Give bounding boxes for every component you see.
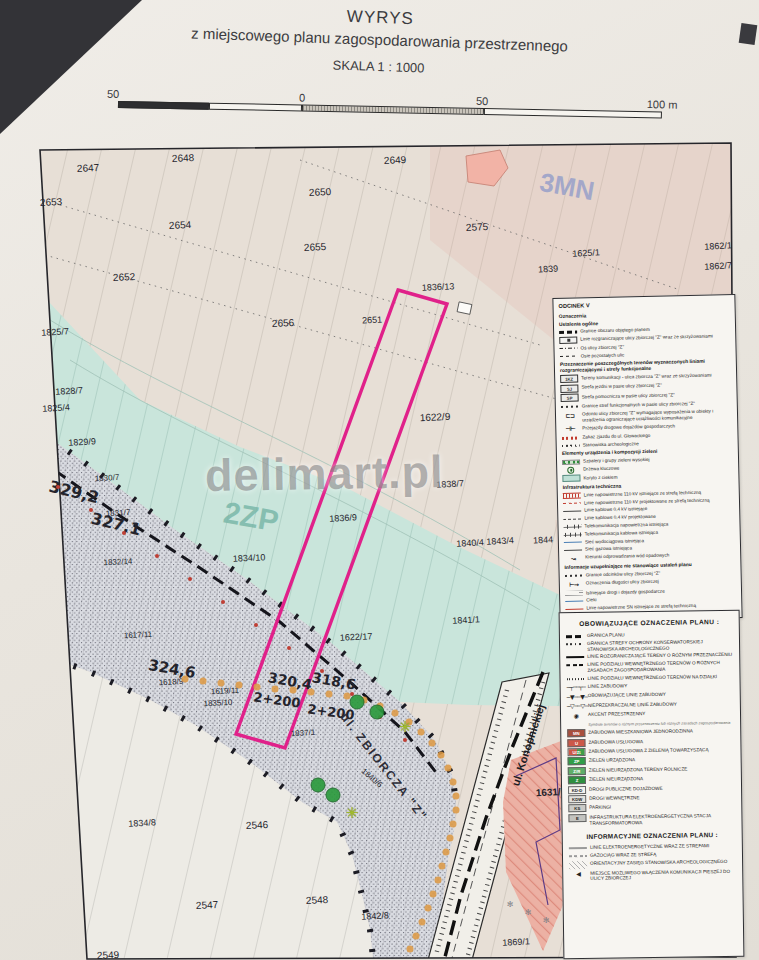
zone-swatch: U/Zt bbox=[567, 748, 585, 756]
tree-row-dot bbox=[447, 835, 454, 842]
legend-odcinek-title: ODCINEK V bbox=[558, 299, 729, 309]
legend-item-label: GRANICA STREFY OCHRONY KONSERWATORSKIEJ … bbox=[587, 638, 733, 653]
tree-row-dot bbox=[218, 680, 225, 687]
tree-row-dot bbox=[236, 682, 243, 689]
axis-point-dot bbox=[89, 508, 93, 512]
parcel-label: 1828/7 bbox=[55, 385, 83, 396]
parcel-label: 1825/4 bbox=[42, 402, 70, 413]
zone-swatch: MN bbox=[567, 729, 585, 737]
parcel-label: 2655 bbox=[304, 241, 327, 253]
legend-swatch-tagbox: SJ bbox=[560, 384, 578, 392]
zone-swatch: U bbox=[567, 739, 585, 747]
legend-info-items: LINIE ELEKTROENERGETYCZNE WRAZ ZE STREFA… bbox=[569, 842, 737, 882]
cross-mark-icon: ✻ bbox=[525, 909, 532, 917]
green-star-icon: ✳ bbox=[399, 719, 412, 734]
zone-label: INFRASTRUKTURA ELEKTROENERGETYCZNA STACJ… bbox=[589, 812, 735, 827]
parcel-label: 1834/8 bbox=[128, 817, 156, 828]
axis-point-dot bbox=[254, 623, 258, 627]
legend-odcinek-box: ODCINEK V Oznaczenia Ustalenia ogólneGra… bbox=[552, 294, 742, 622]
legend-swatch-fdash bbox=[561, 406, 579, 408]
legend-swatch-red bbox=[565, 608, 583, 610]
legend-item: ◀MIEJSCE MOŻLIWEGO WŁĄCZENIA KOMUNIKACJI… bbox=[569, 867, 736, 882]
tree-row-dot bbox=[254, 684, 261, 691]
legend-swatch-symbol: ⊏⊐ bbox=[561, 411, 579, 419]
parcel-label: 2575 bbox=[466, 221, 489, 233]
axis-point-dot bbox=[122, 531, 126, 535]
legend-swatch-kdots bbox=[562, 445, 580, 448]
parcel-label: 1834/10 bbox=[232, 552, 265, 564]
axis-point-dot bbox=[403, 738, 407, 742]
legend-swatch-tree bbox=[567, 466, 574, 473]
tree-row-dot bbox=[290, 687, 297, 694]
tree-row-dot bbox=[326, 691, 333, 698]
chainage-label: 327,1 bbox=[89, 509, 143, 540]
chainage-label: 329,2 bbox=[47, 477, 101, 508]
parcel-label: 2650 bbox=[309, 186, 332, 198]
tree-row-dot bbox=[182, 676, 189, 683]
parcel-label: 2647 bbox=[77, 162, 100, 174]
parcel-label: 1862/1 bbox=[704, 240, 732, 251]
parcel-label: 2653 bbox=[40, 196, 63, 208]
legend-plan-box: OBOWIĄZUJĄCE OZNACZENIA PLANU : GRANICA … bbox=[559, 610, 745, 959]
zone-label: PARKINGI bbox=[589, 804, 611, 811]
chainage-label: 324,6 bbox=[147, 656, 197, 682]
parcel-label: 2654 bbox=[169, 219, 192, 231]
zone-area-label: 3MN bbox=[537, 167, 596, 207]
parcel-label: 2548 bbox=[306, 894, 329, 906]
legend-swatch-mdash bbox=[566, 664, 584, 666]
legend-item-label: GAZOCIĄG WRAZ ZE STREFĄ bbox=[590, 851, 656, 859]
legend-swatch-tealbox bbox=[562, 475, 580, 482]
legend-item-label: Przejazdy drogowe dojazdów gospodarczych bbox=[582, 422, 675, 431]
legend-item-label: GRANICA PLANU bbox=[587, 631, 625, 638]
legend-swatch-kdots bbox=[566, 643, 584, 645]
legend-item-label: Koryto z ciekiem bbox=[583, 473, 617, 481]
legend-item-label: Drzewa kluczowe bbox=[583, 465, 619, 473]
legend-item-label: Osie pozostałych ulic bbox=[581, 351, 625, 359]
tree-row-dot bbox=[430, 891, 437, 898]
zone-swatch: E bbox=[568, 814, 586, 822]
legend-item-label: Sieć wodociągowa istniejąca bbox=[585, 537, 644, 545]
parcel-label: 1622/17 bbox=[339, 631, 372, 643]
zone-swatch: KD-D bbox=[568, 785, 586, 793]
tree-row-dot bbox=[450, 821, 457, 828]
parcel-label: 1829/9 bbox=[68, 436, 96, 447]
parcel-label: 2648 bbox=[172, 152, 195, 164]
legend-swatch-rhatch bbox=[563, 492, 581, 498]
zone-label: ZIELEŃ URZĄDZONA bbox=[589, 757, 636, 764]
legend-swatch-blue bbox=[564, 542, 582, 544]
chainage-label: 318,6 bbox=[311, 669, 357, 692]
tree-row-dot bbox=[435, 877, 442, 884]
legend-swatch-thin bbox=[563, 510, 581, 511]
legend-item-label: Linie kablowe 0,4 kV istniejące bbox=[584, 505, 647, 513]
legend-swatch-dash bbox=[560, 355, 578, 357]
parcel-label: 1840/4 bbox=[456, 537, 484, 548]
legend-swatch-fdots bbox=[567, 678, 585, 680]
parcel-label: 1619/11 bbox=[211, 686, 240, 696]
tree-row-dot bbox=[439, 863, 446, 870]
legend-item-label: Oznaczenia długości ulicy zbiorczej bbox=[586, 578, 659, 586]
zone-label: ZABUDOWA USŁUGOWA Z ZIELENIĄ TOWARZYSZĄC… bbox=[588, 746, 708, 754]
axis-point-dot bbox=[221, 600, 225, 604]
key-tree-icon bbox=[350, 695, 365, 710]
legend-swatch-symbol: ⊢→ bbox=[565, 580, 583, 588]
tree-row-dot bbox=[200, 678, 207, 685]
zone-label: ZIELEŃ NIEURZĄDZONA TERENY ROLNICZE bbox=[589, 765, 688, 773]
legend-swatch-ghatch bbox=[569, 860, 587, 868]
legend-swatch-tick2 bbox=[564, 532, 582, 536]
tree-row-dot bbox=[453, 793, 460, 800]
legend-item-label: Strefa jezdni w pasie ulicy zbiorczej "Z… bbox=[581, 382, 662, 391]
zone-label: DROGI PUBLICZNE DOJAZDOWE bbox=[589, 784, 663, 792]
parcel-label: 1841/1 bbox=[452, 614, 480, 625]
axis-point-dot bbox=[56, 485, 60, 489]
watermark: delimart.pl bbox=[205, 446, 444, 502]
legend-info-header: INFORMACYJNE OZNACZENIA PLANU : bbox=[569, 831, 736, 840]
tree-row-dot bbox=[425, 905, 432, 912]
axis-point-dot bbox=[155, 554, 159, 558]
axis-point-dot bbox=[320, 669, 324, 673]
legend-item: ◉AKCENT PRZESTRZENNY bbox=[567, 709, 734, 720]
legend-swatch-tagbox: 1KZ bbox=[560, 375, 578, 383]
parcel-label: 1843/4 bbox=[486, 535, 514, 546]
legend-swatch-dashdot bbox=[559, 347, 577, 349]
parcel-label: 2549 bbox=[97, 949, 120, 960]
tree-row-dot bbox=[450, 779, 457, 786]
zone-swatch: KS bbox=[568, 804, 586, 812]
cross-mark-icon: ✻ bbox=[507, 901, 514, 909]
parcel-label: 1844 bbox=[533, 534, 554, 545]
legend-item-label: LINIE ZABUDOWY bbox=[588, 682, 628, 689]
parcel-label: 1625/1 bbox=[572, 247, 600, 258]
legend-swatch-rdots bbox=[562, 437, 580, 440]
parcel-label: 1862/7 bbox=[704, 260, 732, 271]
legend-swatch-gdash bbox=[569, 855, 587, 857]
legend-item-label: Stanowiska archeologiczne bbox=[583, 440, 639, 448]
zone-area-label: 2ZP bbox=[221, 495, 281, 538]
parcel-label: 2656 bbox=[272, 317, 295, 329]
legend-swatch-symbol: ─▼──▼─ bbox=[567, 693, 585, 701]
tree-row-dot bbox=[453, 807, 460, 814]
legend-swatch-symbol: ─▽──▽─ bbox=[567, 702, 585, 710]
legend-odcinek-body: Ustalenia ogólneGranice obszaru objętego… bbox=[559, 318, 737, 612]
legend-swatch-groad bbox=[565, 591, 583, 596]
legend-swatch-gdots bbox=[562, 460, 580, 465]
parcel-label: 1835/10 bbox=[203, 698, 232, 709]
legend-item: GRANICA STREFY OCHRONY KONSERWATORSKIEJ … bbox=[566, 638, 733, 653]
legend-plan-items: GRANICA PLANUGRANICA STREFY OCHRONY KONS… bbox=[566, 630, 734, 720]
key-tree-icon bbox=[370, 705, 385, 720]
scanned-plan-photo: WYRYS z miejscowego planu zagospodarowan… bbox=[0, 0, 759, 960]
legend-swatch-thick bbox=[566, 634, 584, 637]
legend-item-label: Strefa pomocnicza w pasie ulicy zbiorcze… bbox=[582, 391, 675, 400]
legend-swatch-bdash bbox=[559, 331, 577, 334]
parcel-label: 1837/1 bbox=[291, 728, 316, 738]
zone-label: DROGI WEWNĘTRZNE bbox=[589, 794, 639, 802]
tree-row-dot bbox=[438, 752, 445, 759]
legend-swatch-tick bbox=[563, 525, 581, 529]
street-label: ul. Konopnickiej bbox=[509, 703, 547, 788]
tree-row-dot bbox=[419, 919, 426, 926]
legend-item-label: Sieć gazowa istniejąca bbox=[585, 545, 632, 553]
cross-mark-icon: ✻ bbox=[543, 917, 550, 925]
legend-swatch-gline bbox=[569, 847, 587, 849]
legend-swatch-blue bbox=[565, 600, 583, 602]
tree-row-dot bbox=[272, 686, 279, 693]
legend-item-label: Cieki bbox=[586, 597, 596, 604]
tree-row-dot bbox=[407, 946, 414, 953]
legend-swatch-thin bbox=[564, 549, 582, 550]
parcel-label: 1836/13 bbox=[421, 281, 454, 293]
zone-swatch: Z/R bbox=[568, 767, 586, 775]
key-tree-icon bbox=[326, 788, 341, 803]
parcel-label: 2652 bbox=[113, 271, 136, 283]
legend-swatch-symbol: ─┬──┬─ bbox=[567, 683, 585, 691]
zone-swatch: ZP bbox=[568, 757, 586, 765]
legend-item-label: MIEJSCE MOŻLIWEGO WŁĄCZENIA KOMUNIKACJI … bbox=[590, 867, 736, 882]
parcel-label: 1839 bbox=[538, 263, 559, 274]
parcel-label: 2649 bbox=[384, 154, 407, 166]
legend-plan-zones: MNZABUDOWA MIESZKANIOWA JEDNORODZINNAUZA… bbox=[567, 727, 735, 826]
parcel-label: 1869/1 bbox=[502, 936, 530, 947]
parcel-label: 1830/7 bbox=[95, 473, 120, 483]
zone-swatch: Z bbox=[568, 776, 586, 784]
zone-swatch: KDW bbox=[568, 795, 586, 803]
tree-row-dot bbox=[413, 933, 420, 940]
parcel-label: 2651 bbox=[362, 314, 383, 325]
legend-plan-header: OBOWIĄZUJĄCE OZNACZENIA PLANU : bbox=[566, 618, 733, 627]
key-tree-icon bbox=[311, 778, 326, 793]
tree-row-dot bbox=[308, 689, 315, 696]
parcel-label: 2546 bbox=[246, 819, 269, 831]
legend-swatch-boxtick bbox=[559, 336, 577, 343]
parcel-label: 1832/14 bbox=[103, 557, 132, 568]
parcel-label: 2547 bbox=[196, 899, 219, 911]
legend-item: LINIE PODZIAŁU WEWNĘTRZNEGO TERENÓW O RÓ… bbox=[566, 659, 733, 674]
legend-swatch-rdash bbox=[563, 502, 581, 504]
legend-swatch-symbol: ⊣⊢ bbox=[561, 425, 579, 433]
zone-label: ZABUDOWA MIESZKANIOWA JEDNORODZINNA bbox=[588, 728, 693, 736]
parcel-label: 1825/7 bbox=[41, 326, 69, 337]
axis-point-dot bbox=[188, 577, 192, 581]
legend-swatch-solid bbox=[566, 656, 584, 658]
zone-label: ZIELEŃ NIEURZĄDZONA bbox=[589, 775, 643, 783]
legend-item-label: Kierunki odprowadzania wód opadowych bbox=[585, 552, 669, 561]
green-star-icon: ✳ bbox=[346, 805, 359, 820]
parcel-label: 1842/8 bbox=[361, 910, 389, 921]
tree-row-dot bbox=[392, 710, 399, 717]
legend-swatch-symbol: ↝ bbox=[564, 554, 582, 562]
legend-item-label: LINIE PODZIAŁU WEWNĘTRZNEGO TERENÓW O RÓ… bbox=[587, 659, 733, 674]
legend-swatch-thindash bbox=[563, 518, 581, 519]
parcel-label: 1617/11 bbox=[124, 630, 153, 640]
tree-row-dot bbox=[429, 740, 436, 747]
legend-swatch-fdash bbox=[565, 575, 583, 577]
legend-swatch-tagbox: SP bbox=[561, 394, 579, 402]
tree-row-dot bbox=[418, 729, 425, 736]
zone-legend-item: EINFRASTRUKTURA ELEKTROENERGETYCZNA STAC… bbox=[568, 812, 735, 827]
legend-item-label: ORIENTACYJNY ZASIĘG STANOWISKA ARCHEOLOG… bbox=[590, 858, 727, 867]
axis-point-dot bbox=[287, 646, 291, 650]
tree-row-dot bbox=[443, 849, 450, 856]
legend-swatch-symbol: ◀ bbox=[569, 870, 587, 878]
parcel-label: 1622/9 bbox=[419, 411, 450, 424]
legend-plan-note: Symbole terenów o różnym przeznaczeniu l… bbox=[588, 721, 734, 728]
legend-item-label: NIEPRZEKRACZALNE LINIE ZABUDOWY bbox=[588, 700, 677, 708]
legend-item-label: Oś ulicy zbiorczej "Z" bbox=[580, 343, 624, 351]
parcel-label: 1836/9 bbox=[329, 512, 357, 523]
tree-row-dot bbox=[445, 765, 452, 772]
legend-swatch-symbol: ◉ bbox=[567, 712, 585, 720]
legend-item-label: OBOWIĄZUJĄCE LINIE ZABUDOWY bbox=[588, 691, 666, 699]
zone-label: ZABUDOWA USŁUGOWA bbox=[588, 738, 643, 746]
legend-item-label: AKCENT PRZESTRZENNY bbox=[588, 710, 646, 718]
